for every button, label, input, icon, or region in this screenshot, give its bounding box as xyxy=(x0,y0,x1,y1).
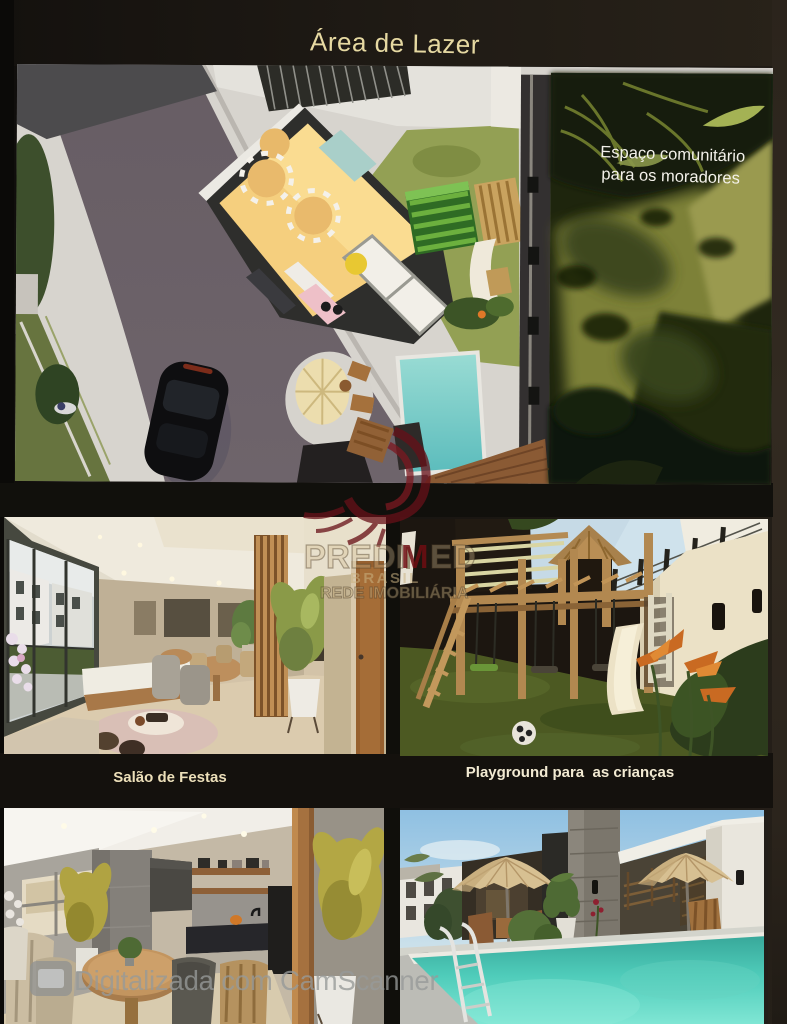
svg-text:REDE IMOBILIÁRIA: REDE IMOBILIÁRIA xyxy=(320,583,469,602)
svg-text:Digitalizada com CamScanner: Digitalizada com CamScanner xyxy=(74,965,439,996)
svg-text:ED: ED xyxy=(430,538,476,575)
